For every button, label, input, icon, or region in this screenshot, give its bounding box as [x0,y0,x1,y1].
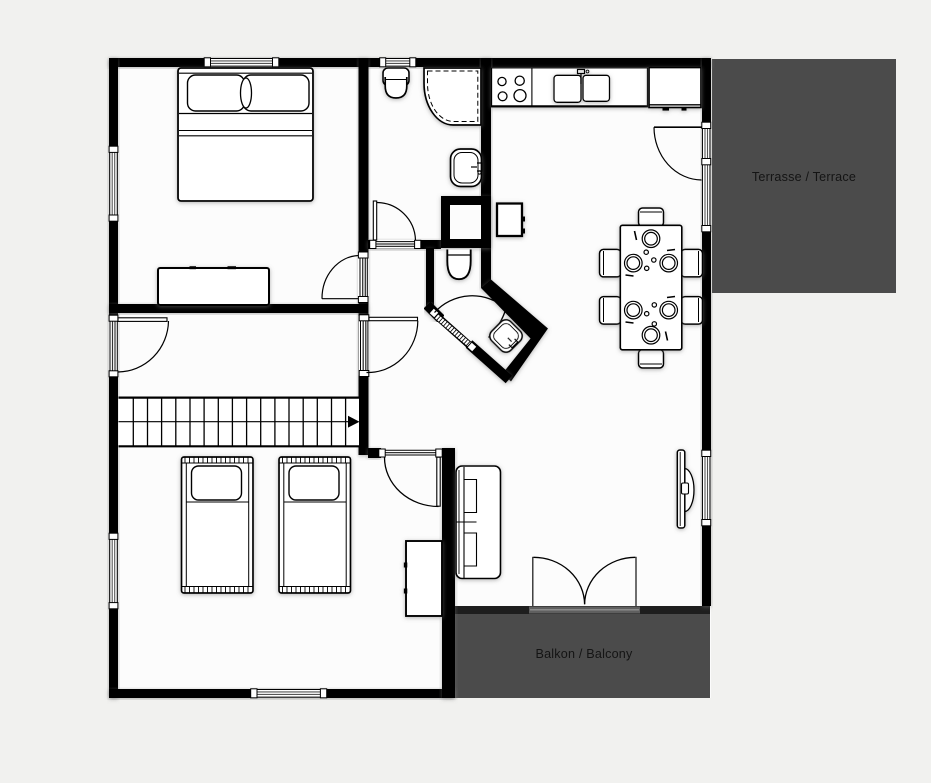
svg-text:Balkon / Balcony: Balkon / Balcony [535,647,633,661]
svg-text:Terrasse / Terrace: Terrasse / Terrace [752,170,856,184]
